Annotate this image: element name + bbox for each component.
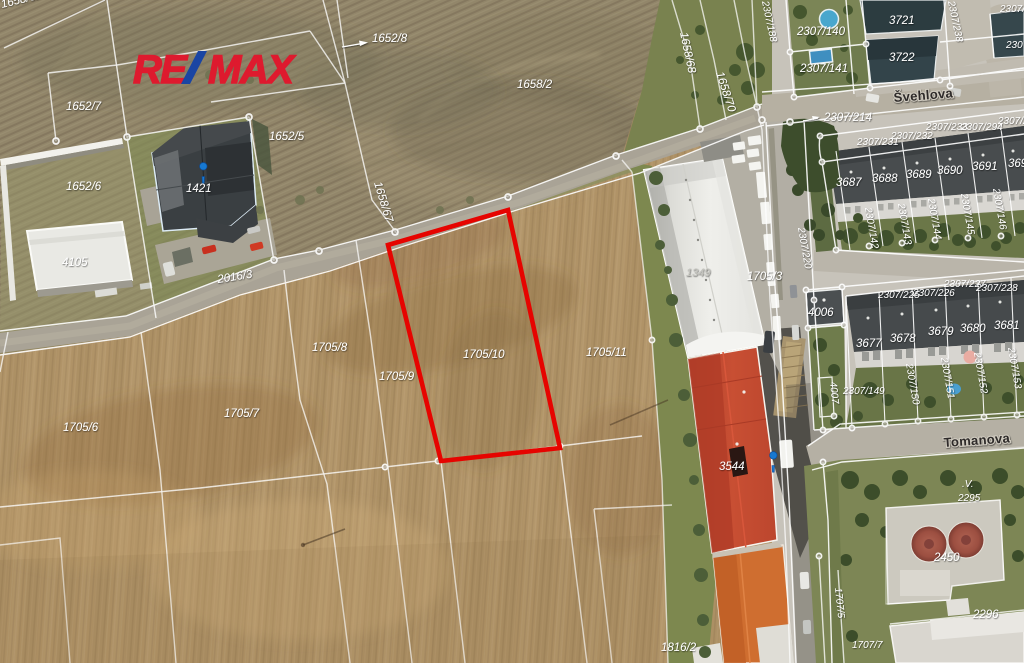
svg-text:3689: 3689 xyxy=(906,169,932,181)
svg-text:369: 369 xyxy=(1008,158,1024,170)
svg-text:1705/8: 1705/8 xyxy=(312,342,348,354)
svg-text:1707/7: 1707/7 xyxy=(852,640,883,651)
svg-text:3544: 3544 xyxy=(719,461,745,473)
svg-text:1652/6: 1652/6 xyxy=(66,181,102,193)
svg-text:1652/8: 1652/8 xyxy=(372,33,408,45)
svg-text:2295: 2295 xyxy=(957,493,981,504)
svg-text:1705/10: 1705/10 xyxy=(463,349,505,361)
svg-text:2307/228: 2307/228 xyxy=(975,283,1018,294)
svg-text:2307/149: 2307/149 xyxy=(842,386,885,397)
svg-text:2307/2: 2307/2 xyxy=(999,4,1024,15)
svg-text:3679: 3679 xyxy=(928,326,954,338)
svg-text:3688: 3688 xyxy=(872,173,898,185)
svg-text:3691: 3691 xyxy=(972,161,998,173)
svg-text:3681: 3681 xyxy=(994,320,1020,332)
svg-text:2307/214: 2307/214 xyxy=(823,112,872,124)
svg-text:MAX: MAX xyxy=(208,48,296,92)
svg-text:1652/5: 1652/5 xyxy=(269,131,305,143)
svg-text:1705/11: 1705/11 xyxy=(586,347,627,359)
svg-text:1421: 1421 xyxy=(186,183,212,195)
svg-text:3687: 3687 xyxy=(836,177,862,189)
svg-text:3722: 3722 xyxy=(889,52,915,64)
svg-text:3721: 3721 xyxy=(889,15,915,27)
svg-text:2307: 2307 xyxy=(1005,40,1024,51)
svg-text:.V.: .V. xyxy=(962,479,973,490)
svg-text:1705/3: 1705/3 xyxy=(747,271,783,283)
svg-text:1705/7: 1705/7 xyxy=(224,408,260,420)
svg-text:2307/23: 2307/23 xyxy=(997,116,1024,127)
svg-text:1652/7: 1652/7 xyxy=(66,101,102,113)
svg-text:1705/6: 1705/6 xyxy=(63,422,99,434)
svg-text:1705/9: 1705/9 xyxy=(379,371,415,383)
svg-text:3680: 3680 xyxy=(960,323,986,335)
svg-text:1349: 1349 xyxy=(686,267,710,279)
svg-text:2296: 2296 xyxy=(972,609,999,621)
svg-text:4105: 4105 xyxy=(62,257,88,269)
svg-text:RE: RE xyxy=(133,48,188,92)
svg-text:2450: 2450 xyxy=(933,552,960,564)
svg-text:1658/2: 1658/2 xyxy=(517,79,553,91)
svg-text:1816/2: 1816/2 xyxy=(661,642,697,654)
svg-text:3677: 3677 xyxy=(856,338,882,350)
svg-text:2307/141: 2307/141 xyxy=(799,63,848,75)
svg-text:4006: 4006 xyxy=(808,307,834,319)
svg-text:2307/140: 2307/140 xyxy=(796,26,846,38)
svg-text:3678: 3678 xyxy=(890,333,916,345)
svg-text:2307/294: 2307/294 xyxy=(960,122,1003,133)
svg-text:3690: 3690 xyxy=(937,165,963,177)
